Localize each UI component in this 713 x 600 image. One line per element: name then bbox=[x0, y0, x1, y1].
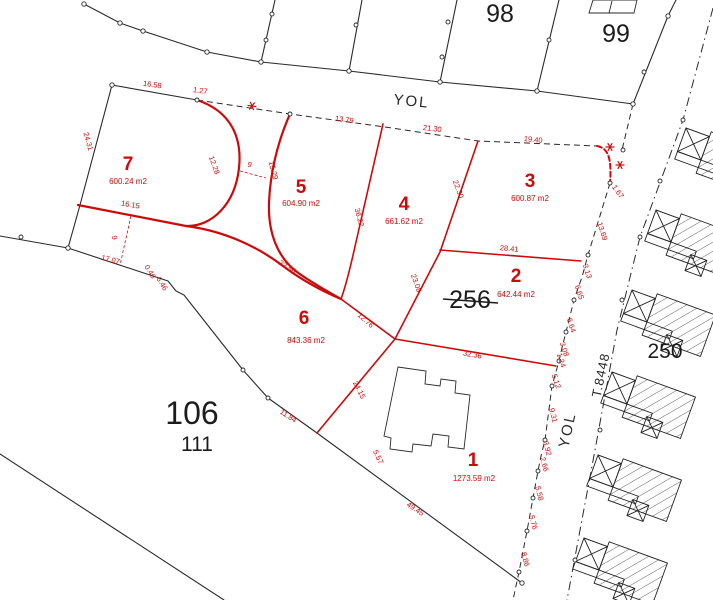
cadastral-map: 98 99 106 111 256 250 YOL YOL T.8448 7 6… bbox=[0, 0, 713, 600]
parcel-number: 2 bbox=[511, 266, 522, 287]
dimension-label: 1.67 bbox=[610, 183, 626, 200]
block-label-98: 98 bbox=[486, 0, 514, 28]
parcel-number: 7 bbox=[123, 154, 134, 175]
parcel-number: 1 bbox=[468, 450, 479, 471]
dimension-label: 32.36 bbox=[462, 348, 482, 360]
dimension-label: 15.29 bbox=[267, 160, 281, 180]
parcel-number: 3 bbox=[525, 171, 536, 192]
parcel-area: 1273.59 m2 bbox=[453, 474, 496, 483]
map-canvas: 98 99 106 111 256 250 YOL YOL T.8448 7 6… bbox=[0, 0, 713, 600]
parcel-area: 661.62 m2 bbox=[385, 217, 423, 226]
dimension-label: 3.92 bbox=[541, 440, 553, 456]
parcel-area: 600.24 m2 bbox=[109, 177, 147, 186]
parcel-labels: 7 600.24 m2 5 604.90 m2 4 661.62 m2 3 60… bbox=[109, 154, 549, 483]
parcel-area: 600.87 m2 bbox=[511, 194, 549, 203]
dimension-label: 28.41 bbox=[499, 243, 518, 254]
row-houses bbox=[568, 123, 713, 600]
dimension-label: 24.31 bbox=[81, 131, 95, 152]
dimension-label: 16.15 bbox=[120, 198, 140, 210]
parcel-area: 604.90 m2 bbox=[282, 199, 320, 208]
dimension-label: 16.58 bbox=[142, 79, 162, 91]
dimension-label: 9 bbox=[246, 160, 252, 170]
dimension-label: 5.76 bbox=[527, 514, 539, 530]
asterisk-mark bbox=[247, 102, 257, 111]
block-boundaries bbox=[0, 85, 522, 600]
asterisk-mark bbox=[616, 161, 625, 169]
dimension-label: 21.30 bbox=[422, 123, 442, 134]
dimension-label: 17.07 bbox=[100, 253, 120, 266]
parcel-area: 843.36 m2 bbox=[287, 336, 325, 345]
dimension-label: 12.76 bbox=[356, 311, 376, 330]
road-label-yol-top: YOL bbox=[393, 91, 431, 112]
dimension-label: 8.86 bbox=[519, 551, 531, 567]
dimension-label: 9.31 bbox=[547, 407, 559, 423]
building-footprint bbox=[384, 367, 470, 452]
dimension-label: 5.57 bbox=[371, 448, 385, 465]
dimension-label: 49.45 bbox=[405, 500, 426, 518]
road-label-t8448: T.8448 bbox=[589, 351, 613, 398]
dimension-labels: 16.581.2724.3112.28915.2913.7921.3019.40… bbox=[81, 79, 625, 568]
asterisk-mark bbox=[606, 143, 615, 151]
dimension-label: 13.69 bbox=[595, 221, 609, 242]
survey-lines-top bbox=[84, 0, 676, 150]
dimension-label: 6.46 bbox=[154, 275, 169, 292]
dimension-label: 12.28 bbox=[207, 155, 222, 176]
dimension-label: 3.13 bbox=[581, 263, 594, 280]
parcel-area: 642.44 m2 bbox=[497, 290, 535, 299]
small-structure-outline bbox=[589, 0, 637, 13]
block-label-111: 111 bbox=[181, 433, 213, 456]
subdivision-top-boundary bbox=[197, 100, 625, 183]
parcel-number: 4 bbox=[399, 194, 410, 215]
block-label-99: 99 bbox=[602, 20, 630, 48]
dimension-label: 11.84 bbox=[278, 407, 298, 424]
dimension-label: 9 bbox=[110, 235, 120, 241]
dimension-label: 36.22 bbox=[353, 207, 367, 227]
parcel-number: 5 bbox=[296, 177, 307, 198]
dimension-label: 13.79 bbox=[334, 114, 354, 126]
dimension-label: 23.08 bbox=[409, 273, 424, 294]
dimension-label: 0.46 bbox=[142, 263, 157, 280]
parcel-number: 6 bbox=[299, 308, 310, 329]
block-label-106: 106 bbox=[165, 395, 218, 431]
dimension-label: 1.27 bbox=[192, 85, 208, 96]
block-label-250: 250 bbox=[647, 340, 682, 363]
